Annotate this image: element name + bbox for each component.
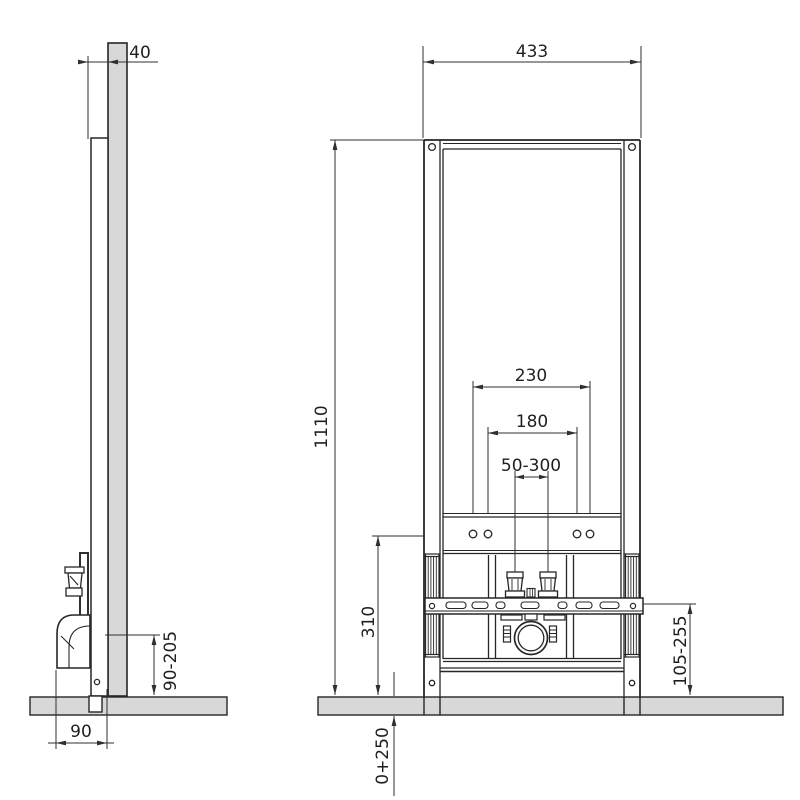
floor-side [30, 697, 227, 715]
label-inlet-range: 50-300 [501, 456, 561, 476]
dimension-labels: 40 433 230 180 50-300 1110 310 90-205 10… [70, 42, 691, 785]
fixing-hole [586, 530, 594, 538]
water-inlet-right [539, 572, 558, 597]
water-inlet-left [506, 572, 525, 597]
label-drain-offset: 90 [70, 722, 92, 742]
under-rail-plates [501, 614, 565, 620]
adjustable-foot-side [89, 696, 102, 712]
foot-fixing-hole [94, 679, 99, 684]
label-front-drain-height: 105-255 [671, 615, 691, 686]
fixing-crossbar [443, 514, 621, 554]
top-fixing-hole-right [629, 144, 636, 151]
top-fixing-hole-left [429, 144, 436, 151]
mounting-rail [425, 598, 643, 614]
fixing-hole [469, 530, 477, 538]
technical-drawing-page: 40 433 230 180 50-300 1110 310 90-205 10… [0, 0, 800, 800]
front-view-dimensions [330, 46, 696, 796]
label-width: 433 [516, 42, 548, 62]
side-view [30, 43, 227, 715]
dimension-inlet-range [515, 471, 548, 572]
dimension-fixing-outer [473, 381, 590, 514]
frame-top-rail [443, 144, 621, 150]
label-depth: 40 [129, 43, 151, 63]
foot-fixing-hole-right [629, 680, 634, 685]
dimension-rail-height [372, 536, 424, 695]
drain-pipe-clamp [504, 622, 557, 655]
center-connector [527, 589, 535, 598]
frame-profile-side [91, 138, 108, 696]
drain-elbow-side [57, 615, 90, 668]
label-fixing-inner: 180 [516, 412, 548, 432]
label-side-drain-height: 90-205 [161, 631, 181, 691]
foot-fixing-hole-left [429, 680, 434, 685]
label-height: 1110 [312, 405, 332, 448]
label-rail-height: 310 [359, 606, 379, 638]
front-view [318, 140, 783, 715]
fixing-hole [484, 530, 492, 538]
floor-front [318, 697, 783, 715]
wall-section [108, 43, 127, 696]
label-fixing-outer: 230 [515, 366, 547, 386]
frame-bottom-rail [440, 659, 624, 672]
technical-drawing-canvas: 40 433 230 180 50-300 1110 310 90-205 10… [0, 0, 800, 800]
fixing-hole [573, 530, 581, 538]
label-foot-adjust: 0+250 [373, 727, 393, 785]
water-connection-side [65, 567, 84, 596]
